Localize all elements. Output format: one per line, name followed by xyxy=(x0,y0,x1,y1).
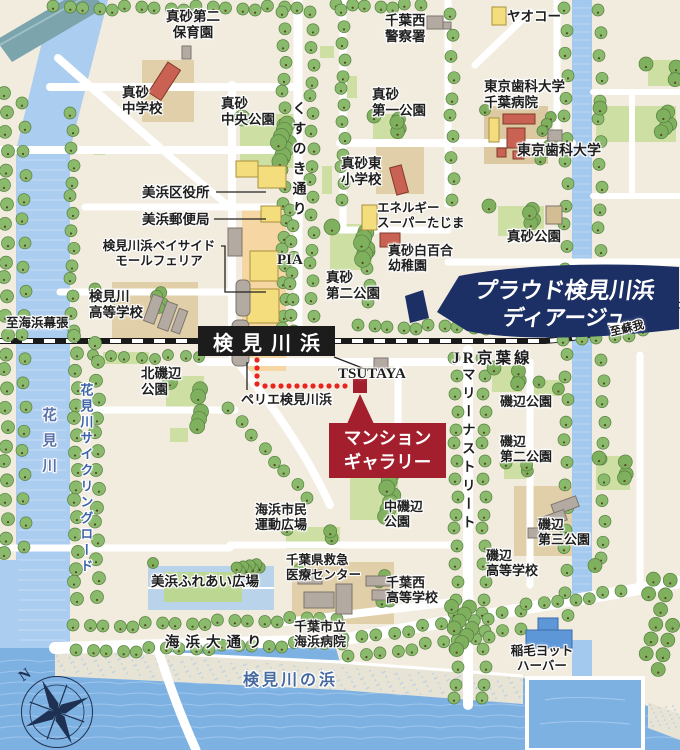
label-tokyo-dental-college: 東京歯科大学 xyxy=(517,144,601,161)
label-mihama-post-office: 美浜郵便局 xyxy=(142,212,210,228)
label-chiba-nishi-police: 千葉西 警察署 xyxy=(385,13,426,45)
label-masago-daini-park: 真砂 第二公園 xyxy=(326,270,380,302)
label-mihama-ward-office: 美浜区役所 xyxy=(142,185,210,201)
label-masago-junior-high: 真砂 中学校 xyxy=(122,85,163,117)
label-isobe-daini-park: 磯辺 第二公園 xyxy=(500,434,552,465)
area-map: N 真砂第二 保育園 真砂 中学校 真砂 中央公園 千葉西 警察署 ヤオコー 真… xyxy=(0,0,680,750)
mansion-gallery-box: マンション ギャラリー xyxy=(329,423,446,478)
banner-diage: ディアージュ xyxy=(448,301,680,332)
label-tsutaya: TSUTAYA xyxy=(338,366,406,384)
station-name: 検見川浜 xyxy=(204,327,329,356)
label-isobe-high-school: 磯辺 高等学校 xyxy=(486,548,538,579)
label-kemigawa-high-school: 検見川 高等学校 xyxy=(89,289,143,321)
label-kemigawa-beach: 検見川の浜 xyxy=(243,672,338,691)
label-chiba-nishi-high-school: 千葉西 高等学校 xyxy=(386,575,438,606)
label-isobe-daisan-park: 磯辺 第三公園 xyxy=(538,517,590,548)
label-marina-street: マリーナストリート xyxy=(459,367,475,534)
label-hanamigawa-cycling-road: 花見川サイクリングロード xyxy=(78,383,93,575)
label-kita-isobe-park: 北磯辺 公園 xyxy=(141,366,182,398)
label-masago-shirayuri-kindergarten: 真砂白百合 幼稚園 xyxy=(388,243,453,274)
label-kaihin-citizens-ground: 海浜市民 運動広場 xyxy=(255,502,307,533)
label-energy-super-tajima: エネルギー スーパーたじま xyxy=(377,201,464,231)
mansion-gallery-label: マンション ギャラリー xyxy=(344,427,432,474)
label-naka-isobe-park: 中磯辺 公園 xyxy=(384,499,423,530)
label-bayside-mall-feria: 検見川浜ベイサイド モールフェリア xyxy=(96,239,222,269)
label-chiba-kaihin-hospital: 千葉市立 海浜病院 xyxy=(294,619,346,650)
label-masago-higashi-elementary: 真砂東 小学校 xyxy=(341,156,382,188)
label-masago-park: 真砂公園 xyxy=(507,229,561,245)
label-perie-kemigawahama: ペリエ検見川浜 xyxy=(241,392,332,407)
label-inage-yacht-harbor: 稲毛ヨット ハーバー xyxy=(510,644,574,674)
label-masago-daiichi-park: 真砂 第一公園 xyxy=(372,87,426,119)
label-kusunoki-street: くすのき通り xyxy=(289,101,306,221)
label-mihama-fureai-plaza: 美浜ふれあい広場 xyxy=(151,574,259,590)
station-kemigawahama: 検見川浜 xyxy=(198,326,335,356)
label-jr-keiyo-line: JR京葉線 xyxy=(452,350,532,368)
label-chiba-emergency-center: 千葉県救急 医療センター xyxy=(286,553,361,583)
label-tokyo-dental-chiba-hospital: 東京歯科大学 千葉病院 xyxy=(484,79,565,111)
label-masago-daini-nursery: 真砂第二 保育園 xyxy=(147,9,239,41)
label-pia: PIA xyxy=(277,252,303,270)
label-kaihin-avenue: 海浜大通り xyxy=(165,635,268,652)
label-hanami-river: 花見川 xyxy=(39,407,56,484)
label-masago-central-park: 真砂 中央公園 xyxy=(221,96,275,128)
label-to-kaihimmakuhari: 至海浜幕張 xyxy=(6,316,69,331)
label-isobe-park: 磯辺公園 xyxy=(500,394,552,409)
label-yaoko: ヤオコー xyxy=(507,9,561,25)
